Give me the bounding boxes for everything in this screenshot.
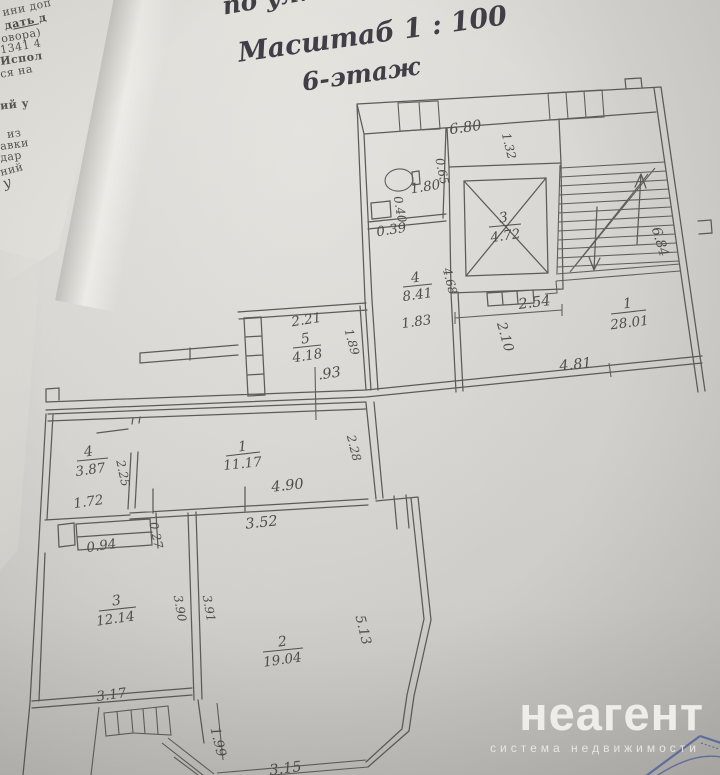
dim-2-25: 2.25 — [113, 458, 132, 488]
room-1-number: 1 — [622, 296, 633, 313]
room-3-area: 4.72 — [488, 226, 521, 246]
watermark: неагент система недвижимости — [490, 690, 704, 755]
room-1-lower-area: 11.17 — [223, 454, 264, 474]
room-4-number: 4 — [409, 269, 421, 286]
dim-2-54: 2.54 — [517, 293, 552, 313]
room-4-lower-number: 4 — [82, 443, 94, 460]
dim-3-15: 3.15 — [269, 759, 303, 775]
dim-0-94: 0.94 — [85, 536, 117, 556]
floor-plan: 6.80 1.32 0.65 1.80 0.40 0.39 3 4.72 4 8… — [0, 0, 720, 775]
room-2-lower-number: 2 — [276, 633, 288, 650]
dim-4-90: 4.90 — [270, 476, 305, 495]
dim-4-81: 4.81 — [558, 355, 593, 374]
room-5-number: 5 — [300, 330, 311, 347]
room-4-lower-area: 3.87 — [74, 460, 106, 480]
dim-3-90: 3.90 — [171, 594, 189, 623]
room2-right-wall — [366, 402, 431, 767]
dim-1-80: 1.80 — [409, 177, 442, 198]
watermark-tagline: система недвижимости — [490, 741, 704, 755]
dim-3-91: 3.91 — [200, 594, 218, 623]
dim-1-83: 1.83 — [400, 312, 432, 332]
dim-4-68: 4.68 — [440, 265, 460, 296]
room-1-lower-number: 1 — [237, 439, 248, 456]
dim-2-21: 2.21 — [289, 310, 322, 331]
watermark-brand: неагент — [490, 690, 704, 737]
room-1-area: 28.01 — [608, 313, 649, 334]
room-4-area: 8.41 — [401, 285, 433, 305]
room-3-lower-area: 12.14 — [95, 608, 136, 629]
dim-1-72: 1.72 — [72, 492, 104, 512]
dim-2-10: 2.10 — [493, 319, 517, 354]
room-label-fraction-lines — [77, 224, 646, 652]
dim-1-32: 1.32 — [499, 131, 519, 160]
dim-3-52: 3.52 — [245, 513, 279, 532]
room-3-number: 3 — [498, 209, 509, 226]
dim-0-39: 0.39 — [375, 220, 408, 241]
dim-0-93: .93 — [317, 365, 342, 384]
dim-6-80: 6.80 — [448, 118, 482, 138]
middle-walls — [46, 303, 702, 410]
dim-3-17: 3.17 — [95, 685, 127, 705]
dim-2-28: 2.28 — [344, 432, 364, 463]
dim-1-89: 1.89 — [342, 327, 363, 357]
room-5-area: 4.18 — [290, 346, 324, 367]
lower-unit-outer-walls — [23, 402, 366, 775]
dim-1-99: 1.99 — [206, 726, 229, 759]
room-3-lower-number: 3 — [111, 592, 122, 609]
room-2-lower-area: 19.04 — [262, 649, 303, 670]
dim-5-13: 5.13 — [351, 614, 374, 647]
balcony-and-bottom — [91, 703, 368, 775]
